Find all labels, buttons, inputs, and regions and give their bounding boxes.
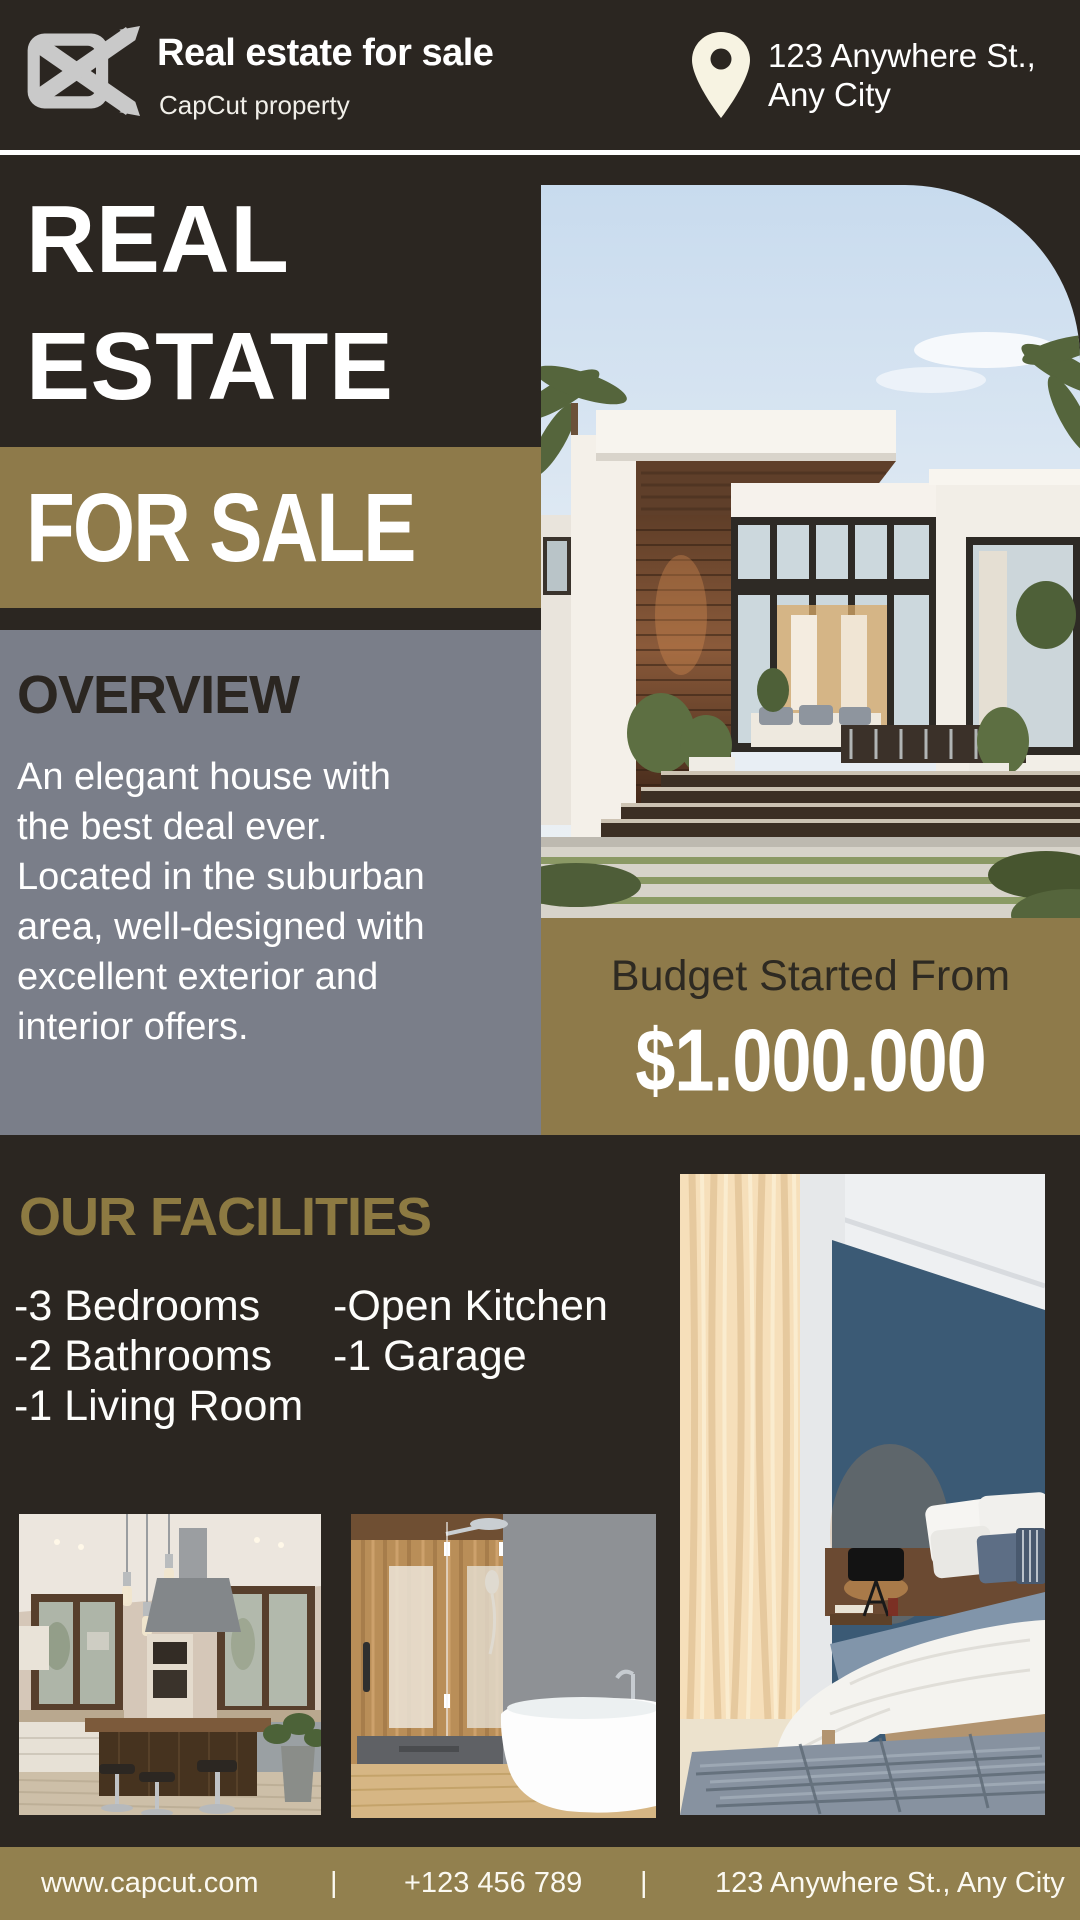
address-line2: Any City	[768, 75, 1036, 114]
footer-separator: |	[640, 1847, 648, 1920]
hero-title: REAL ESTATE	[26, 176, 393, 430]
facility-item: -2 Bathrooms	[14, 1331, 303, 1381]
flyer-canvas: Real estate for sale CapCut property 123…	[0, 0, 1080, 1920]
for-sale-banner: FOR SALE	[0, 447, 541, 608]
facility-item: -3 Bedrooms	[14, 1281, 303, 1331]
footer-phone: +123 456 789	[404, 1847, 582, 1920]
hero-title-line1: REAL	[26, 176, 393, 303]
house-photo	[541, 185, 1080, 918]
overview-heading: OVERVIEW	[17, 664, 299, 726]
hero-title-line2: ESTATE	[26, 303, 393, 430]
footer-separator: |	[330, 1847, 338, 1920]
facilities-heading: OUR FACILITIES	[19, 1186, 431, 1248]
bedroom-photo	[680, 1174, 1045, 1815]
kitchen-photo	[19, 1514, 321, 1815]
footer-website: www.capcut.com	[41, 1847, 259, 1920]
bathroom-photo	[351, 1514, 656, 1818]
facilities-column-2: -Open Kitchen -1 Garage	[333, 1281, 608, 1381]
facility-item: -1 Living Room	[14, 1381, 303, 1431]
footer-address: 123 Anywhere St., Any City	[715, 1847, 1065, 1920]
address-line1: 123 Anywhere St.,	[768, 36, 1036, 75]
facilities-column-1: -3 Bedrooms -2 Bathrooms -1 Living Room	[14, 1281, 303, 1431]
overview-line: area, well-designed with	[17, 902, 425, 952]
facility-item: -Open Kitchen	[333, 1281, 608, 1331]
budget-price: $1.000.000	[635, 1011, 985, 1111]
brand-subtitle: CapCut property	[159, 90, 350, 121]
for-sale-label: FOR SALE	[26, 429, 414, 625]
facility-item: -1 Garage	[333, 1331, 608, 1381]
overview-line: An elegant house with	[17, 752, 425, 802]
header-address: 123 Anywhere St., Any City	[768, 36, 1036, 114]
overview-panel: OVERVIEW An elegant house with the best …	[0, 630, 541, 1135]
overview-body: An elegant house with the best deal ever…	[17, 752, 425, 1052]
overview-line: the best deal ever.	[17, 802, 425, 852]
budget-label: Budget Started From	[541, 952, 1080, 1001]
capcut-logo-icon	[22, 26, 140, 116]
footer-bar: www.capcut.com | +123 456 789 | 123 Anyw…	[0, 1847, 1080, 1920]
overview-line: Located in the suburban	[17, 852, 425, 902]
budget-panel: Budget Started From $1.000.000	[541, 918, 1080, 1135]
brand-title: Real estate for sale	[157, 32, 493, 75]
location-pin-icon	[692, 32, 750, 118]
overview-line: excellent exterior and	[17, 952, 425, 1002]
overview-line: interior offers.	[17, 1002, 425, 1052]
header-divider	[0, 150, 1080, 155]
